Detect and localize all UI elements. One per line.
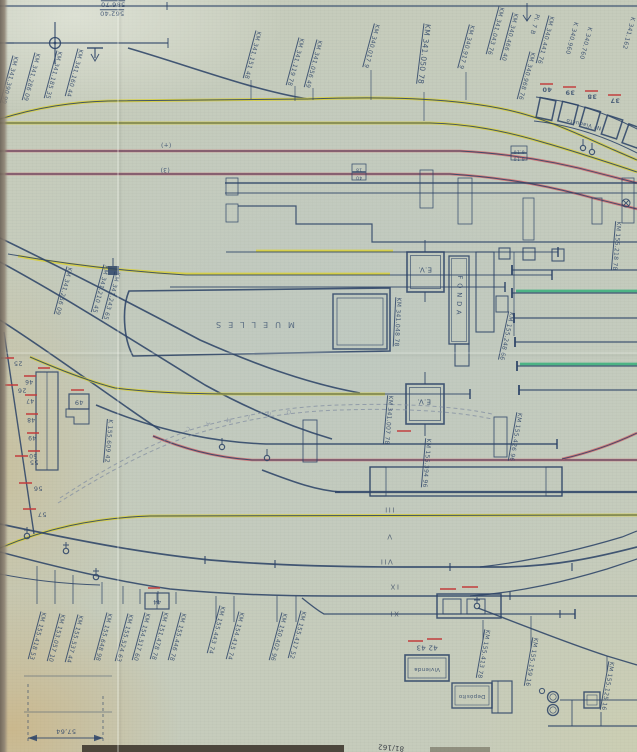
km-label: KM 341.256 09 xyxy=(54,266,73,315)
km-label: KM 340.917 9 xyxy=(457,24,474,69)
siding-tracks xyxy=(8,178,637,292)
track-number: IX xyxy=(389,583,399,590)
main-passenger-platform xyxy=(370,467,562,496)
km-label: KM 341.050 78 xyxy=(417,23,432,84)
viaduct xyxy=(534,84,637,153)
left-platform xyxy=(24,368,89,470)
right-platform-hatches xyxy=(420,170,634,261)
km-label: K 340.960 xyxy=(564,21,578,55)
km-label: KM 155.413 78 xyxy=(476,629,490,679)
km-label: KM 155.426 96 xyxy=(508,412,522,462)
km-label: KM 341.243 65 xyxy=(102,271,121,320)
km-label: KM 341.210 45 xyxy=(91,264,110,313)
track-descending-curve xyxy=(128,48,308,99)
switch-number: 25 xyxy=(14,360,23,367)
km-label: KM 155.648 98 xyxy=(94,612,113,661)
building-label: E.V. xyxy=(418,266,432,273)
red-highlighted-tracks-top xyxy=(0,151,637,209)
km-label: KM 150.402 96 xyxy=(269,612,288,661)
km-label: KM 341.151 48 xyxy=(243,30,262,79)
km-label: KM 155.537 44 xyxy=(65,614,84,663)
building-fonda xyxy=(449,252,514,366)
km-label: KM 151.478 78 xyxy=(150,611,169,660)
building-label: FONDA xyxy=(455,275,463,318)
km-label: KM 340.441 76 xyxy=(536,15,555,64)
km-label: KM 155.248 66 xyxy=(498,311,514,360)
top-border-line xyxy=(0,2,637,10)
switch-number: 56 xyxy=(34,485,43,492)
platform-number: 48 xyxy=(27,416,35,422)
left-ladder-track xyxy=(1,332,36,534)
km-label: KM 341.043 76 xyxy=(486,6,505,55)
km-label: KM 341.056 49 xyxy=(304,39,323,88)
yellow-highlighted-tracks-top xyxy=(0,98,637,172)
km-label: KM 341.007 78 xyxy=(383,395,393,445)
km-label: KM 155.218 78 xyxy=(611,221,621,271)
elevation-label: 562'40 xyxy=(100,10,124,17)
km-label: K 341.162 xyxy=(621,16,635,50)
plate-label: Pl. 7 B xyxy=(528,13,539,35)
dimension-bottom-left xyxy=(24,676,112,744)
switch-number: 55 xyxy=(30,459,39,466)
building-number: 42 43 xyxy=(416,644,438,651)
km-label: KM 340.968 76 xyxy=(517,51,536,100)
track-number: V xyxy=(386,533,392,540)
km-label: KM 154.517 60 xyxy=(132,612,151,661)
km-label: KM 153.057 10 xyxy=(47,613,66,662)
km-label: KM 341.119 78 xyxy=(286,37,305,86)
level-mark: 40 xyxy=(356,174,362,179)
switch-box-44 xyxy=(145,588,169,609)
scan-bottom-edge xyxy=(82,745,490,752)
elevation-label: 586'70 xyxy=(101,1,125,8)
building-number: 49 xyxy=(75,399,84,406)
scan-edge-left xyxy=(0,0,8,752)
viaduct-label: Nº Viaducto xyxy=(566,116,602,129)
viaduct-number: 38 xyxy=(587,93,597,100)
road-letter: I xyxy=(247,413,250,419)
track-mark: (+) xyxy=(161,141,172,147)
platform-number: 50 xyxy=(29,452,37,458)
km-label: KM 155.394 96 xyxy=(421,438,431,488)
road-letter: M xyxy=(226,415,233,422)
building-label: Depósito xyxy=(459,692,486,698)
track-number: XI xyxy=(389,610,399,617)
level-mark: 18 xyxy=(356,166,362,171)
viaduct-number: 39 xyxy=(565,89,575,96)
bottom-right-yard-lines xyxy=(548,700,637,726)
paper-fold-horizontal xyxy=(0,352,637,354)
km-label: KM 341.160 44 xyxy=(65,48,84,97)
track-number: III xyxy=(384,506,395,513)
km-label: K 340.760 xyxy=(578,26,592,60)
survey-line xyxy=(0,22,168,64)
switch-box-double xyxy=(437,587,501,618)
platform-number: 47 xyxy=(26,397,34,403)
km-label: KM 340.466 40 xyxy=(500,12,519,61)
platform-number: 46 xyxy=(25,378,33,384)
building-vivienda xyxy=(405,639,449,681)
paper-fold-vertical xyxy=(117,0,119,752)
signal-symbols-top xyxy=(580,139,594,155)
muelles-platform xyxy=(124,288,390,356)
building-label: MUELLES xyxy=(209,320,295,328)
level-mark: 6.10 xyxy=(513,155,524,160)
dimension-arrow-top xyxy=(523,3,531,21)
km-label: KM 341.286 09 xyxy=(22,52,41,101)
bottom-label-leaders xyxy=(37,566,607,672)
km-label: KM 341.185 35 xyxy=(44,50,63,99)
platform-number: 49 xyxy=(28,434,36,440)
km-label: KM 155.417 52 xyxy=(288,610,307,659)
track-mark: (3) xyxy=(160,166,169,172)
km-label: KM 155.443 74 xyxy=(207,605,226,654)
km-label: KM 341.390 99 xyxy=(0,55,18,104)
building-deposito xyxy=(452,681,512,713)
building-number: 44 xyxy=(153,598,161,604)
road-letter: C xyxy=(185,425,191,432)
km-label: KM 341.048 78 xyxy=(393,297,402,347)
track-plan-drawing xyxy=(0,0,637,752)
bottom-tracks xyxy=(0,515,637,665)
road-letter: A xyxy=(205,420,211,427)
km-label: KM 155.446 78 xyxy=(168,612,187,661)
road-letter: O xyxy=(286,408,292,415)
km-label: KM 154.415 74 xyxy=(226,611,245,660)
km-label: KM 155.159 16 xyxy=(524,637,538,687)
km-label: KM 155.524 63 xyxy=(115,613,134,662)
km-label: KM 155.125 16 xyxy=(600,661,614,711)
building-ev-north xyxy=(407,240,444,302)
building-label: E.V. xyxy=(417,398,431,405)
right-stub-tracks xyxy=(512,265,637,395)
label-leader-ticks-top xyxy=(251,70,466,121)
sheet-number: 81/162 xyxy=(378,742,405,751)
scanned-track-plan: 586'70562'40KM 341.390 99KM 341.286 09KM… xyxy=(0,0,637,752)
level-boxes xyxy=(352,146,527,180)
track-number: VII xyxy=(379,558,392,565)
building-ev-south xyxy=(397,372,444,436)
center-fan-curves xyxy=(0,238,637,503)
level-mark: 6.10 xyxy=(513,148,524,153)
viaduct-number: 40 xyxy=(542,86,552,93)
km-label: K 155.609 42 xyxy=(103,419,113,463)
building-label: Vivienda xyxy=(414,665,440,671)
km-label: KM 155.418 53 xyxy=(28,611,47,660)
viaduct-number: 37 xyxy=(610,97,620,104)
switch-number: 57 xyxy=(38,511,47,518)
water-tanks xyxy=(539,688,600,715)
annotation-layer: 586'70562'40KM 341.390 99KM 341.286 09KM… xyxy=(0,0,637,752)
km-label: KM 340.017 9 xyxy=(362,23,379,68)
road-letter: N xyxy=(266,410,272,417)
dimension-label: 57,64 xyxy=(56,728,76,735)
switch-number: 26 xyxy=(18,387,27,394)
